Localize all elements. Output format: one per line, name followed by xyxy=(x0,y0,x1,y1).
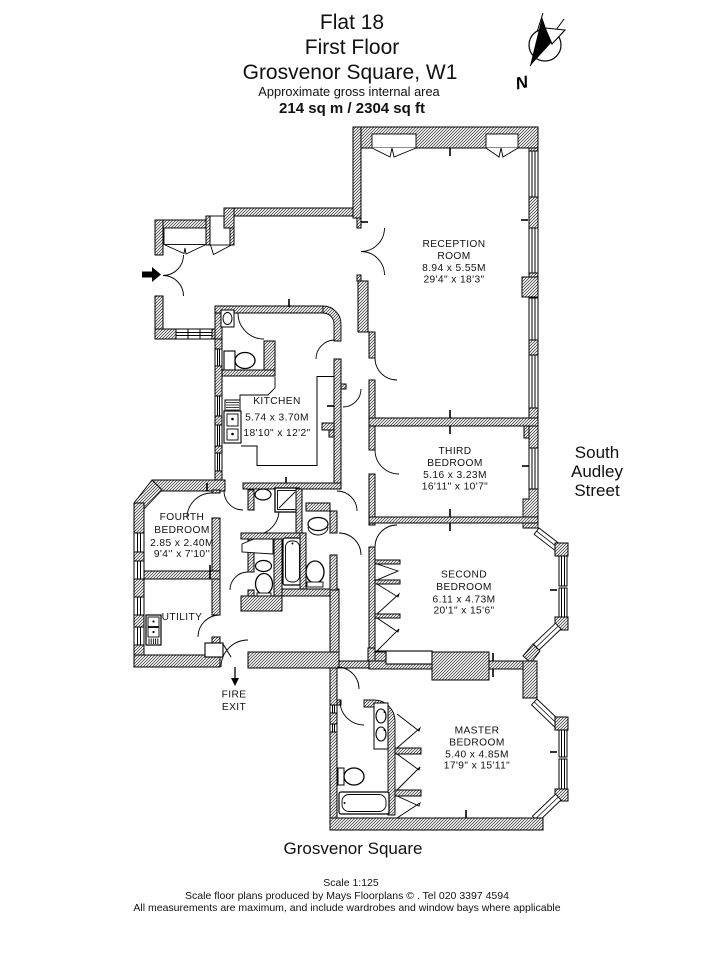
svg-text:20'1" x 15'6": 20'1" x 15'6" xyxy=(433,606,494,617)
svg-text:6.11 x 4.73M: 6.11 x 4.73M xyxy=(433,595,496,606)
svg-text:ROOM: ROOM xyxy=(437,251,470,262)
svg-text:Audley: Audley xyxy=(571,462,623,481)
svg-text:BEDROOM: BEDROOM xyxy=(427,458,482,469)
svg-text:5.74 x 3.70M: 5.74 x 3.70M xyxy=(245,413,309,424)
svg-text:THIRD: THIRD xyxy=(438,446,471,457)
svg-text:All measurements are maximum,: All measurements are maximum, and includ… xyxy=(133,902,560,914)
svg-text:Street: Street xyxy=(574,481,620,500)
svg-text:UTILITY: UTILITY xyxy=(162,612,203,623)
svg-text:KITCHEN: KITCHEN xyxy=(253,396,301,407)
svg-text:BEDROOM: BEDROOM xyxy=(449,738,504,749)
svg-text:MASTER: MASTER xyxy=(455,726,500,737)
svg-text:Grosvenor Square: Grosvenor Square xyxy=(284,839,423,858)
svg-text:Approximate gross internal are: Approximate gross internal area xyxy=(258,84,440,99)
svg-text:Flat 18: Flat 18 xyxy=(320,11,384,34)
svg-text:FIRE: FIRE xyxy=(222,690,247,701)
svg-text:29'4" x 18'3": 29'4" x 18'3" xyxy=(423,275,484,286)
svg-text:18'10" x 12'2": 18'10" x 12'2" xyxy=(243,428,310,439)
svg-text:RECEPTION: RECEPTION xyxy=(422,239,485,250)
svg-text:Scale floor plans produced by: Scale floor plans produced by Mays Floor… xyxy=(185,890,509,902)
svg-text:5.16 x 3.23M: 5.16 x 3.23M xyxy=(423,470,487,481)
svg-text:Grosvenor Square, W1: Grosvenor Square, W1 xyxy=(243,61,458,84)
svg-text:SECOND: SECOND xyxy=(441,570,487,581)
svg-text:16'11" x 10'7": 16'11" x 10'7" xyxy=(422,482,488,493)
svg-text:First Floor: First Floor xyxy=(305,36,400,59)
svg-text:Scale 1:125: Scale 1:125 xyxy=(323,877,379,889)
svg-text:9'4'' x 7'10'': 9'4'' x 7'10'' xyxy=(154,549,210,560)
svg-text:5.40 x 4.85M: 5.40 x 4.85M xyxy=(445,750,509,761)
svg-text:BEDROOM: BEDROOM xyxy=(436,582,491,593)
svg-text:214 sq m / 2304 sq ft: 214 sq m / 2304 sq ft xyxy=(279,100,425,117)
svg-text:South: South xyxy=(575,443,619,462)
svg-text:8.94 x 5.55M: 8.94 x 5.55M xyxy=(422,263,486,274)
svg-text:BEDROOM: BEDROOM xyxy=(154,525,209,536)
svg-text:EXIT: EXIT xyxy=(222,702,246,713)
svg-text:17'9" x 15'11": 17'9" x 15'11" xyxy=(444,761,510,772)
svg-text:FOURTH: FOURTH xyxy=(160,512,205,523)
svg-text:2.85 x 2.40M: 2.85 x 2.40M xyxy=(150,538,214,549)
